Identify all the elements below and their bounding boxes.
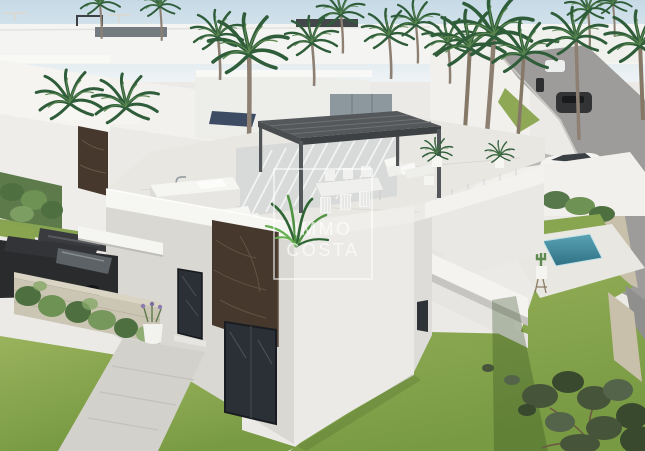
neighbour-roof-slab: [0, 55, 110, 63]
lavender-bloom: [141, 304, 145, 308]
pergola-post: [299, 141, 303, 213]
architectural-render: IMMO COSTA: [0, 0, 645, 451]
sliding-glass-door: [225, 322, 276, 424]
white-pot: [143, 324, 163, 344]
watermark-line1: IMMO: [294, 219, 353, 239]
watermark-line2: COSTA: [286, 240, 359, 260]
parked-moped: [536, 78, 544, 92]
parked-car-white-small: [545, 60, 565, 72]
lavender-bloom: [158, 305, 162, 309]
marble-column: [78, 126, 108, 196]
car-window: [562, 96, 584, 103]
pergola-post: [259, 124, 262, 172]
mid-building-center-roof: [196, 70, 372, 77]
cactus-pot: [536, 266, 547, 279]
lounger-side-table: [424, 176, 434, 185]
far-window-band: [95, 27, 167, 37]
lavender-bloom: [150, 302, 154, 306]
wing-window: [417, 300, 428, 332]
